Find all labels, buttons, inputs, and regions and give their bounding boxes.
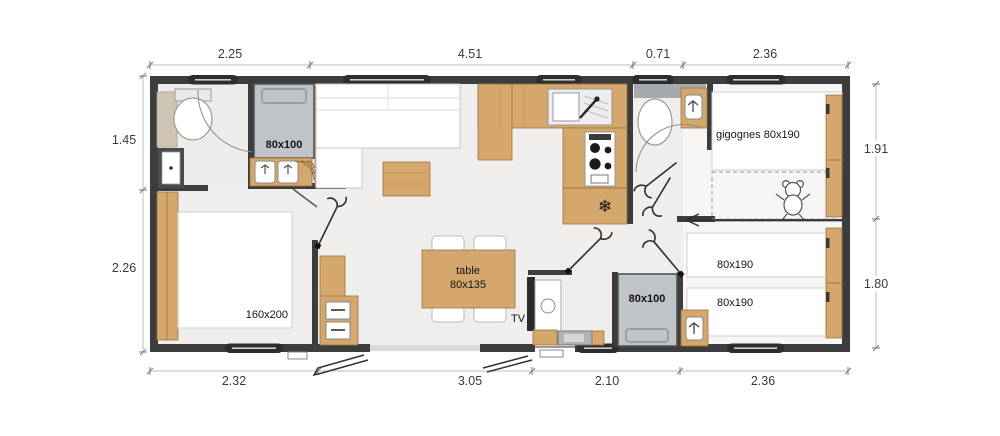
- sliding-bay-window: [370, 345, 480, 351]
- entry-threshold: [540, 350, 563, 357]
- toilet-icon: [638, 99, 672, 145]
- coffee-table-top: [383, 162, 430, 196]
- wall-bottom-center: [480, 344, 535, 352]
- dim-top-3: 0.71: [646, 47, 670, 61]
- low-cabinet-wood: [592, 331, 604, 345]
- dim-left-2: 2.26: [112, 261, 136, 275]
- washbasin-icon: [681, 88, 707, 128]
- dim-top-4: 2.36: [753, 47, 777, 61]
- table-label-2: 80x135: [450, 279, 486, 291]
- dim-bottom-4: 2.36: [751, 374, 775, 388]
- wall-kitchen-wc2: [627, 83, 633, 224]
- wardrobe-left: [157, 192, 178, 340]
- dim-bottom-1: 2.32: [222, 374, 246, 388]
- bed-gigognes-label: gigognes 80x190: [716, 129, 800, 141]
- washbasin-icon: [681, 310, 708, 346]
- master-bedroom: 160x200: [157, 192, 292, 340]
- stove-panel: [585, 132, 615, 186]
- entry-step-lines: [314, 355, 532, 375]
- washbasin-drain: [169, 166, 173, 170]
- dim-top-1: 2.25: [218, 47, 242, 61]
- wall-right: [842, 76, 850, 352]
- bed-small-bottom: 80x100: [618, 274, 677, 346]
- bed-small-top-label: 80x100: [266, 139, 303, 151]
- entry-threshold: [288, 352, 307, 359]
- floor-plan-drawing: 2.25 4.51 0.71 2.36 2.32 3.05 2.10 2.36 …: [0, 0, 1000, 436]
- double-washbasin-unit: [250, 158, 314, 186]
- fridge-snowflake-icon: ❄: [598, 197, 612, 216]
- tv-screen-icon: [527, 277, 535, 331]
- hall-cabinet-a: [320, 256, 345, 297]
- tv-cabinet: [535, 280, 561, 332]
- table-label-1: table: [456, 265, 480, 277]
- dim-bottom-2: 3.05: [458, 374, 482, 388]
- kitchen-counter-left: [478, 84, 512, 160]
- dim-bottom-3: 2.10: [595, 374, 619, 388]
- dim-right-1: 1.91: [864, 142, 888, 156]
- wall-bed-alcove-left: [612, 272, 618, 347]
- toilet-bowl: [174, 98, 212, 140]
- dim-top-2: 4.51: [458, 47, 482, 61]
- wall-bedroom1-right: [312, 240, 318, 345]
- wall-twinroom-top-stub: [677, 216, 715, 222]
- washbasin-icon: [158, 148, 184, 188]
- sink-basin: [553, 93, 579, 121]
- dim-right-2: 1.80: [864, 277, 888, 291]
- bed-twin-1: [687, 233, 826, 277]
- toilet-icon: [174, 89, 212, 140]
- sink-icon: [548, 89, 612, 125]
- coffee-table-icon: [383, 162, 430, 196]
- floor-plan-canvas: 2.25 4.51 0.71 2.36 2.32 3.05 2.10 2.36 …: [0, 0, 1000, 436]
- tv-label: TV: [511, 313, 526, 325]
- bed-twin-2-label: 80x190: [717, 297, 753, 309]
- sofa-chaise: [316, 148, 362, 188]
- bed-twin-1-label: 80x190: [717, 259, 753, 271]
- bed-master-label: 160x200: [246, 309, 288, 321]
- stove-icon: [585, 132, 615, 186]
- bed-small-bottom-label: 80x100: [629, 293, 666, 305]
- low-cabinet-inner: [564, 334, 584, 342]
- dim-left-1: 1.45: [112, 133, 136, 147]
- tv-base-wood: [533, 330, 557, 345]
